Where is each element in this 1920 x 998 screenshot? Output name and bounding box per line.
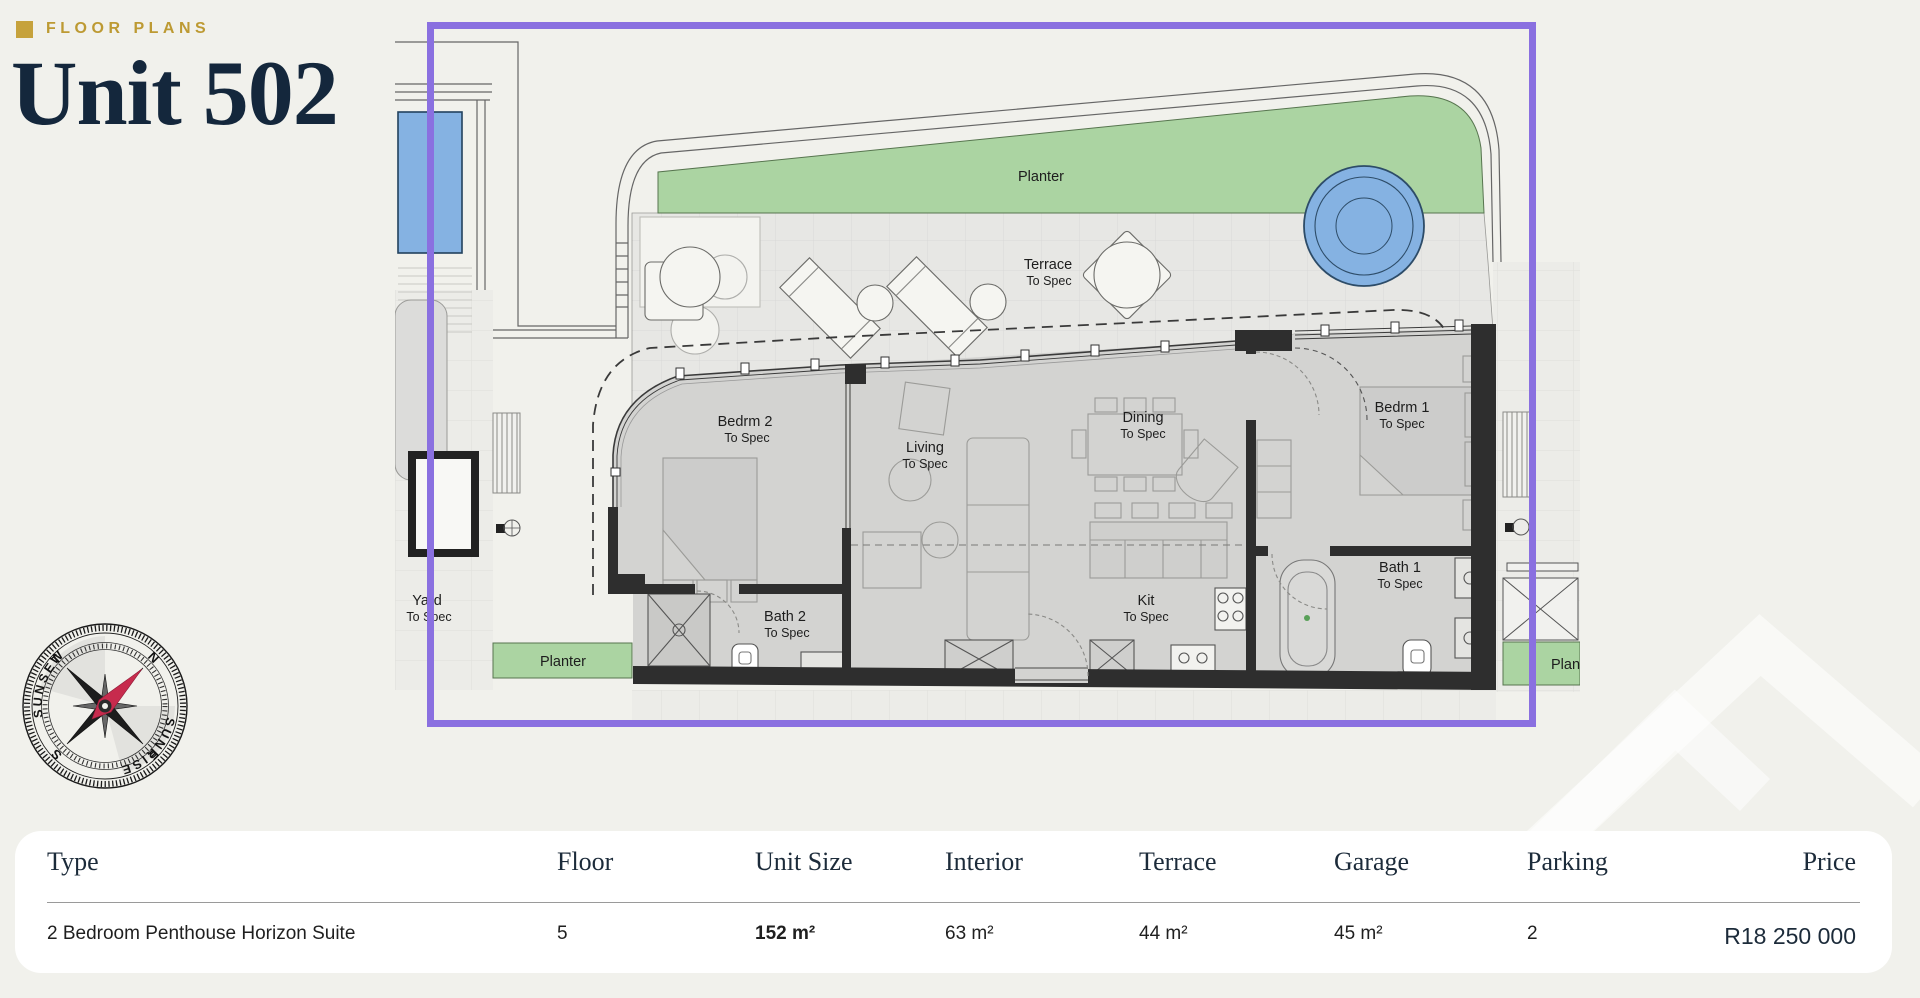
col-header-unit-size: Unit Size bbox=[755, 847, 853, 877]
svg-text:To Spec: To Spec bbox=[1123, 610, 1168, 624]
label-planter-right: Planter bbox=[1551, 657, 1580, 673]
svg-text:To Spec: To Spec bbox=[1120, 427, 1165, 441]
gold-square-icon bbox=[16, 21, 33, 38]
col-header-floor: Floor bbox=[557, 847, 613, 877]
svg-text:To Spec: To Spec bbox=[724, 431, 769, 445]
label-bedroom1: Bedrm 1 bbox=[1375, 400, 1430, 416]
compass-rose: N E S W SUNSET SUNRISE bbox=[12, 612, 198, 800]
svg-text:To Spec: To Spec bbox=[1026, 274, 1071, 288]
section-eyebrow: FLOOR PLANS bbox=[16, 20, 210, 38]
col-header-parking: Parking bbox=[1527, 847, 1608, 877]
unit-floor-value: 5 bbox=[557, 923, 568, 945]
unit-interior-value: 63 m² bbox=[945, 923, 994, 945]
col-header-garage: Garage bbox=[1334, 847, 1409, 877]
label-bedroom2: Bedrm 2 bbox=[718, 414, 773, 430]
unit-parking-value: 2 bbox=[1527, 923, 1538, 945]
unit-price-value: R18 250 000 bbox=[1724, 923, 1856, 950]
floor-plans-page: FLOOR PLANS Unit 502 bbox=[0, 0, 1920, 998]
label-dining: Dining bbox=[1122, 410, 1163, 426]
floor-plan-drawing: Planter Terrace To Spec Bedrm 2 To Spec … bbox=[395, 0, 1580, 760]
col-header-interior: Interior bbox=[945, 847, 1023, 877]
label-terrace: Terrace bbox=[1024, 257, 1072, 273]
unit-garage-value: 45 m² bbox=[1334, 923, 1383, 945]
label-living: Living bbox=[906, 440, 944, 456]
svg-text:To Spec: To Spec bbox=[902, 457, 947, 471]
label-kitchen: Kit bbox=[1138, 593, 1155, 609]
page-title: Unit 502 bbox=[11, 40, 338, 146]
svg-text:To Spec: To Spec bbox=[1377, 577, 1422, 591]
spa-pool bbox=[1304, 166, 1424, 286]
unit-type-value: 2 Bedroom Penthouse Horizon Suite bbox=[47, 923, 355, 945]
section-label: FLOOR PLANS bbox=[46, 20, 210, 38]
label-planter-top: Planter bbox=[1018, 169, 1064, 185]
unit-spec-table: Type Floor Unit Size Interior Terrace Ga… bbox=[15, 831, 1892, 973]
col-header-price: Price bbox=[1803, 847, 1856, 877]
col-header-type: Type bbox=[47, 847, 99, 877]
compass-n: N bbox=[145, 649, 162, 666]
svg-text:To Spec: To Spec bbox=[764, 626, 809, 640]
unit-size-value: 152 m² bbox=[755, 923, 815, 945]
svg-text:To Spec: To Spec bbox=[1379, 417, 1424, 431]
unit-terrace-value: 44 m² bbox=[1139, 923, 1188, 945]
label-bath2: Bath 2 bbox=[764, 609, 806, 625]
label-bath1: Bath 1 bbox=[1379, 560, 1421, 576]
label-planter-left: Planter bbox=[540, 654, 586, 670]
col-header-terrace: Terrace bbox=[1139, 847, 1217, 877]
table-divider bbox=[47, 902, 1860, 903]
